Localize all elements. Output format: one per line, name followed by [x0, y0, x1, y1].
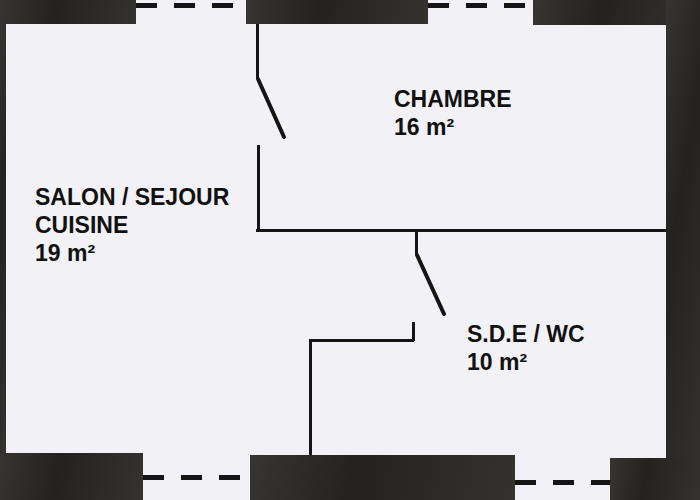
room-name-line: CHAMBRE [394, 85, 512, 113]
wall-bottom-right-segment [610, 458, 700, 500]
window-bottom-left [143, 475, 250, 480]
window-top-left [136, 3, 246, 8]
wall-right [666, 0, 700, 500]
door-chambre-leaf [258, 79, 284, 137]
wall-left [0, 24, 6, 454]
wall-top-middle-segment [246, 0, 428, 24]
wall-bottom-left-segment [0, 453, 143, 500]
wall-top-left-segment [0, 0, 136, 24]
wall-bottom-middle-segment [250, 455, 515, 500]
window-top-right [428, 3, 533, 8]
room-label-salon-sejour-cuisine: SALON / SEJOUR CUISINE 19 m² [35, 183, 229, 267]
room-label-chambre: CHAMBRE 16 m² [394, 85, 512, 141]
room-label-sde-wc: S.D.E / WC 10 m² [467, 320, 585, 376]
partition-chambre-upper [256, 24, 259, 79]
room-area-label: 16 m² [394, 113, 512, 141]
room-name-line: SALON / SEJOUR [35, 183, 229, 211]
room-name-line: S.D.E / WC [467, 320, 585, 348]
door-sde-leaf [417, 255, 444, 314]
partition-sde-door-jamb [415, 232, 418, 255]
partition-mid-horizontal [256, 229, 666, 232]
partition-sde-top [309, 339, 414, 342]
window-bottom-right [515, 480, 610, 485]
room-name-line: CUISINE [35, 211, 229, 239]
room-area-label: 10 m² [467, 348, 585, 376]
partition-chambre-lower [257, 145, 260, 232]
partition-sde-left [309, 339, 312, 455]
floor-plan: SALON / SEJOUR CUISINE 19 m² CHAMBRE 16 … [0, 0, 700, 500]
room-area-label: 19 m² [35, 239, 229, 267]
